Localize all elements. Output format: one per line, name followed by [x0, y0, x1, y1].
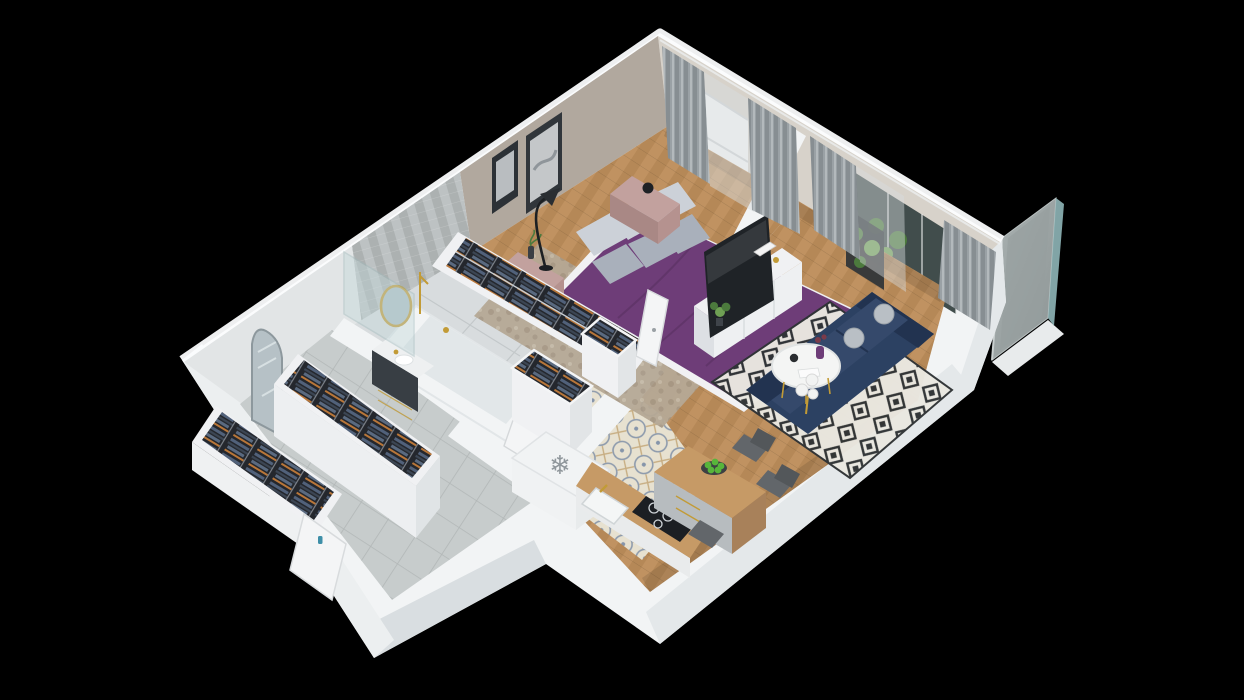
snowflake-icon: ❄ [549, 451, 571, 481]
render-canvas: ❄ [0, 0, 1244, 700]
vanity-gold-tap [394, 350, 399, 355]
entry-door-handle [318, 536, 323, 544]
alarm-clock [643, 183, 654, 194]
sofa-ball-pillow [844, 328, 864, 348]
apartment-floorplan-svg: ❄ [0, 0, 1244, 700]
tub-gold-faucet [443, 327, 449, 333]
sofa-ball-pillow [874, 304, 894, 324]
gold-candle [773, 257, 779, 263]
black-cup [790, 354, 798, 362]
purple-vase [816, 346, 824, 359]
